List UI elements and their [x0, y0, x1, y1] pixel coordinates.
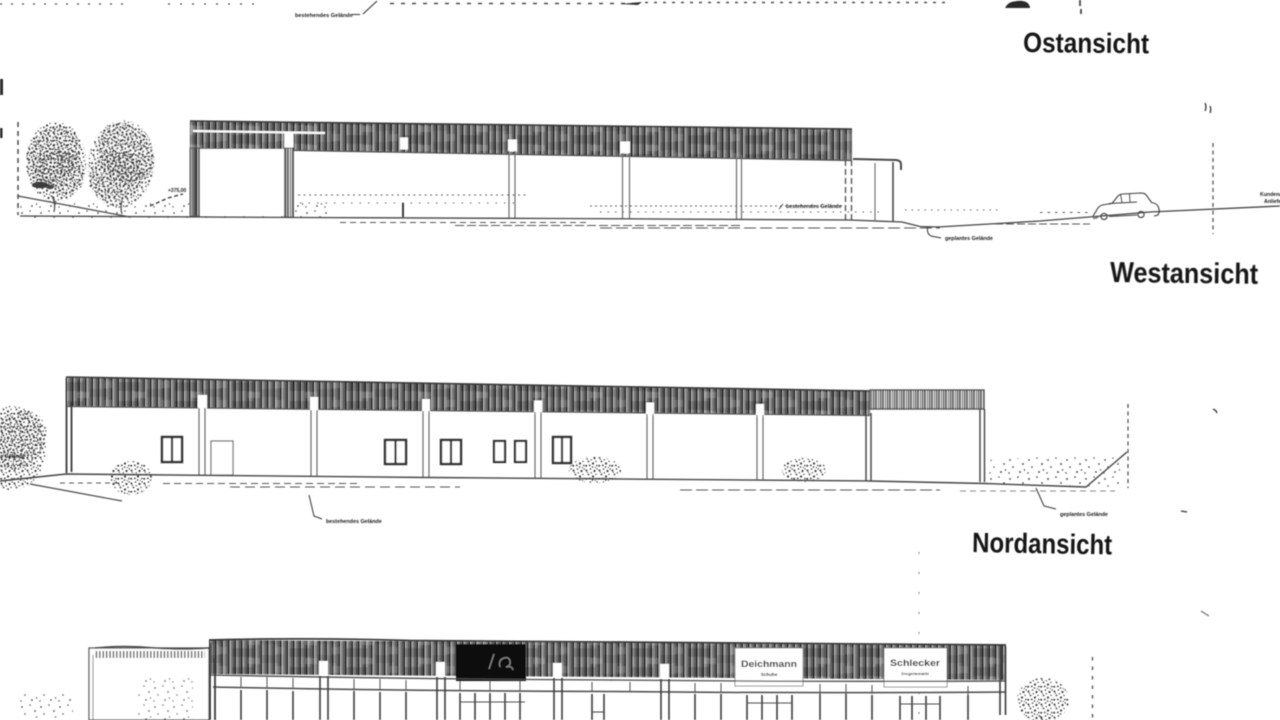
- svg-text:bestehendes Gelände: bestehendes Gelände: [786, 204, 842, 210]
- svg-text:Ostansicht: Ostansicht: [1023, 27, 1149, 59]
- svg-text:Schuhe: Schuhe: [761, 672, 778, 677]
- svg-text:Kundenanlief: Kundenanlief: [1260, 192, 1280, 198]
- svg-text:bestehendes Gelände: bestehendes Gelände: [326, 519, 382, 525]
- svg-text:bestehendes Gelände: bestehendes Gelände: [295, 13, 353, 19]
- svg-text:Deichmann: Deichmann: [741, 659, 797, 669]
- svg-text:+375,00: +375,00: [168, 188, 186, 194]
- svg-text:Schlecker: Schlecker: [890, 658, 941, 668]
- svg-text:Drogeriemarkt: Drogeriemarkt: [901, 671, 929, 676]
- svg-text:s Gelände: s Gelände: [0, 454, 25, 460]
- svg-text:geplantes Gelände: geplantes Gelände: [945, 236, 993, 242]
- svg-text:Anliefe: Anliefe: [1264, 199, 1280, 205]
- svg-text:Westansicht: Westansicht: [1110, 257, 1259, 291]
- svg-text:geplantes Gelände: geplantes Gelände: [1060, 512, 1108, 518]
- svg-text:Nordansicht: Nordansicht: [972, 527, 1113, 560]
